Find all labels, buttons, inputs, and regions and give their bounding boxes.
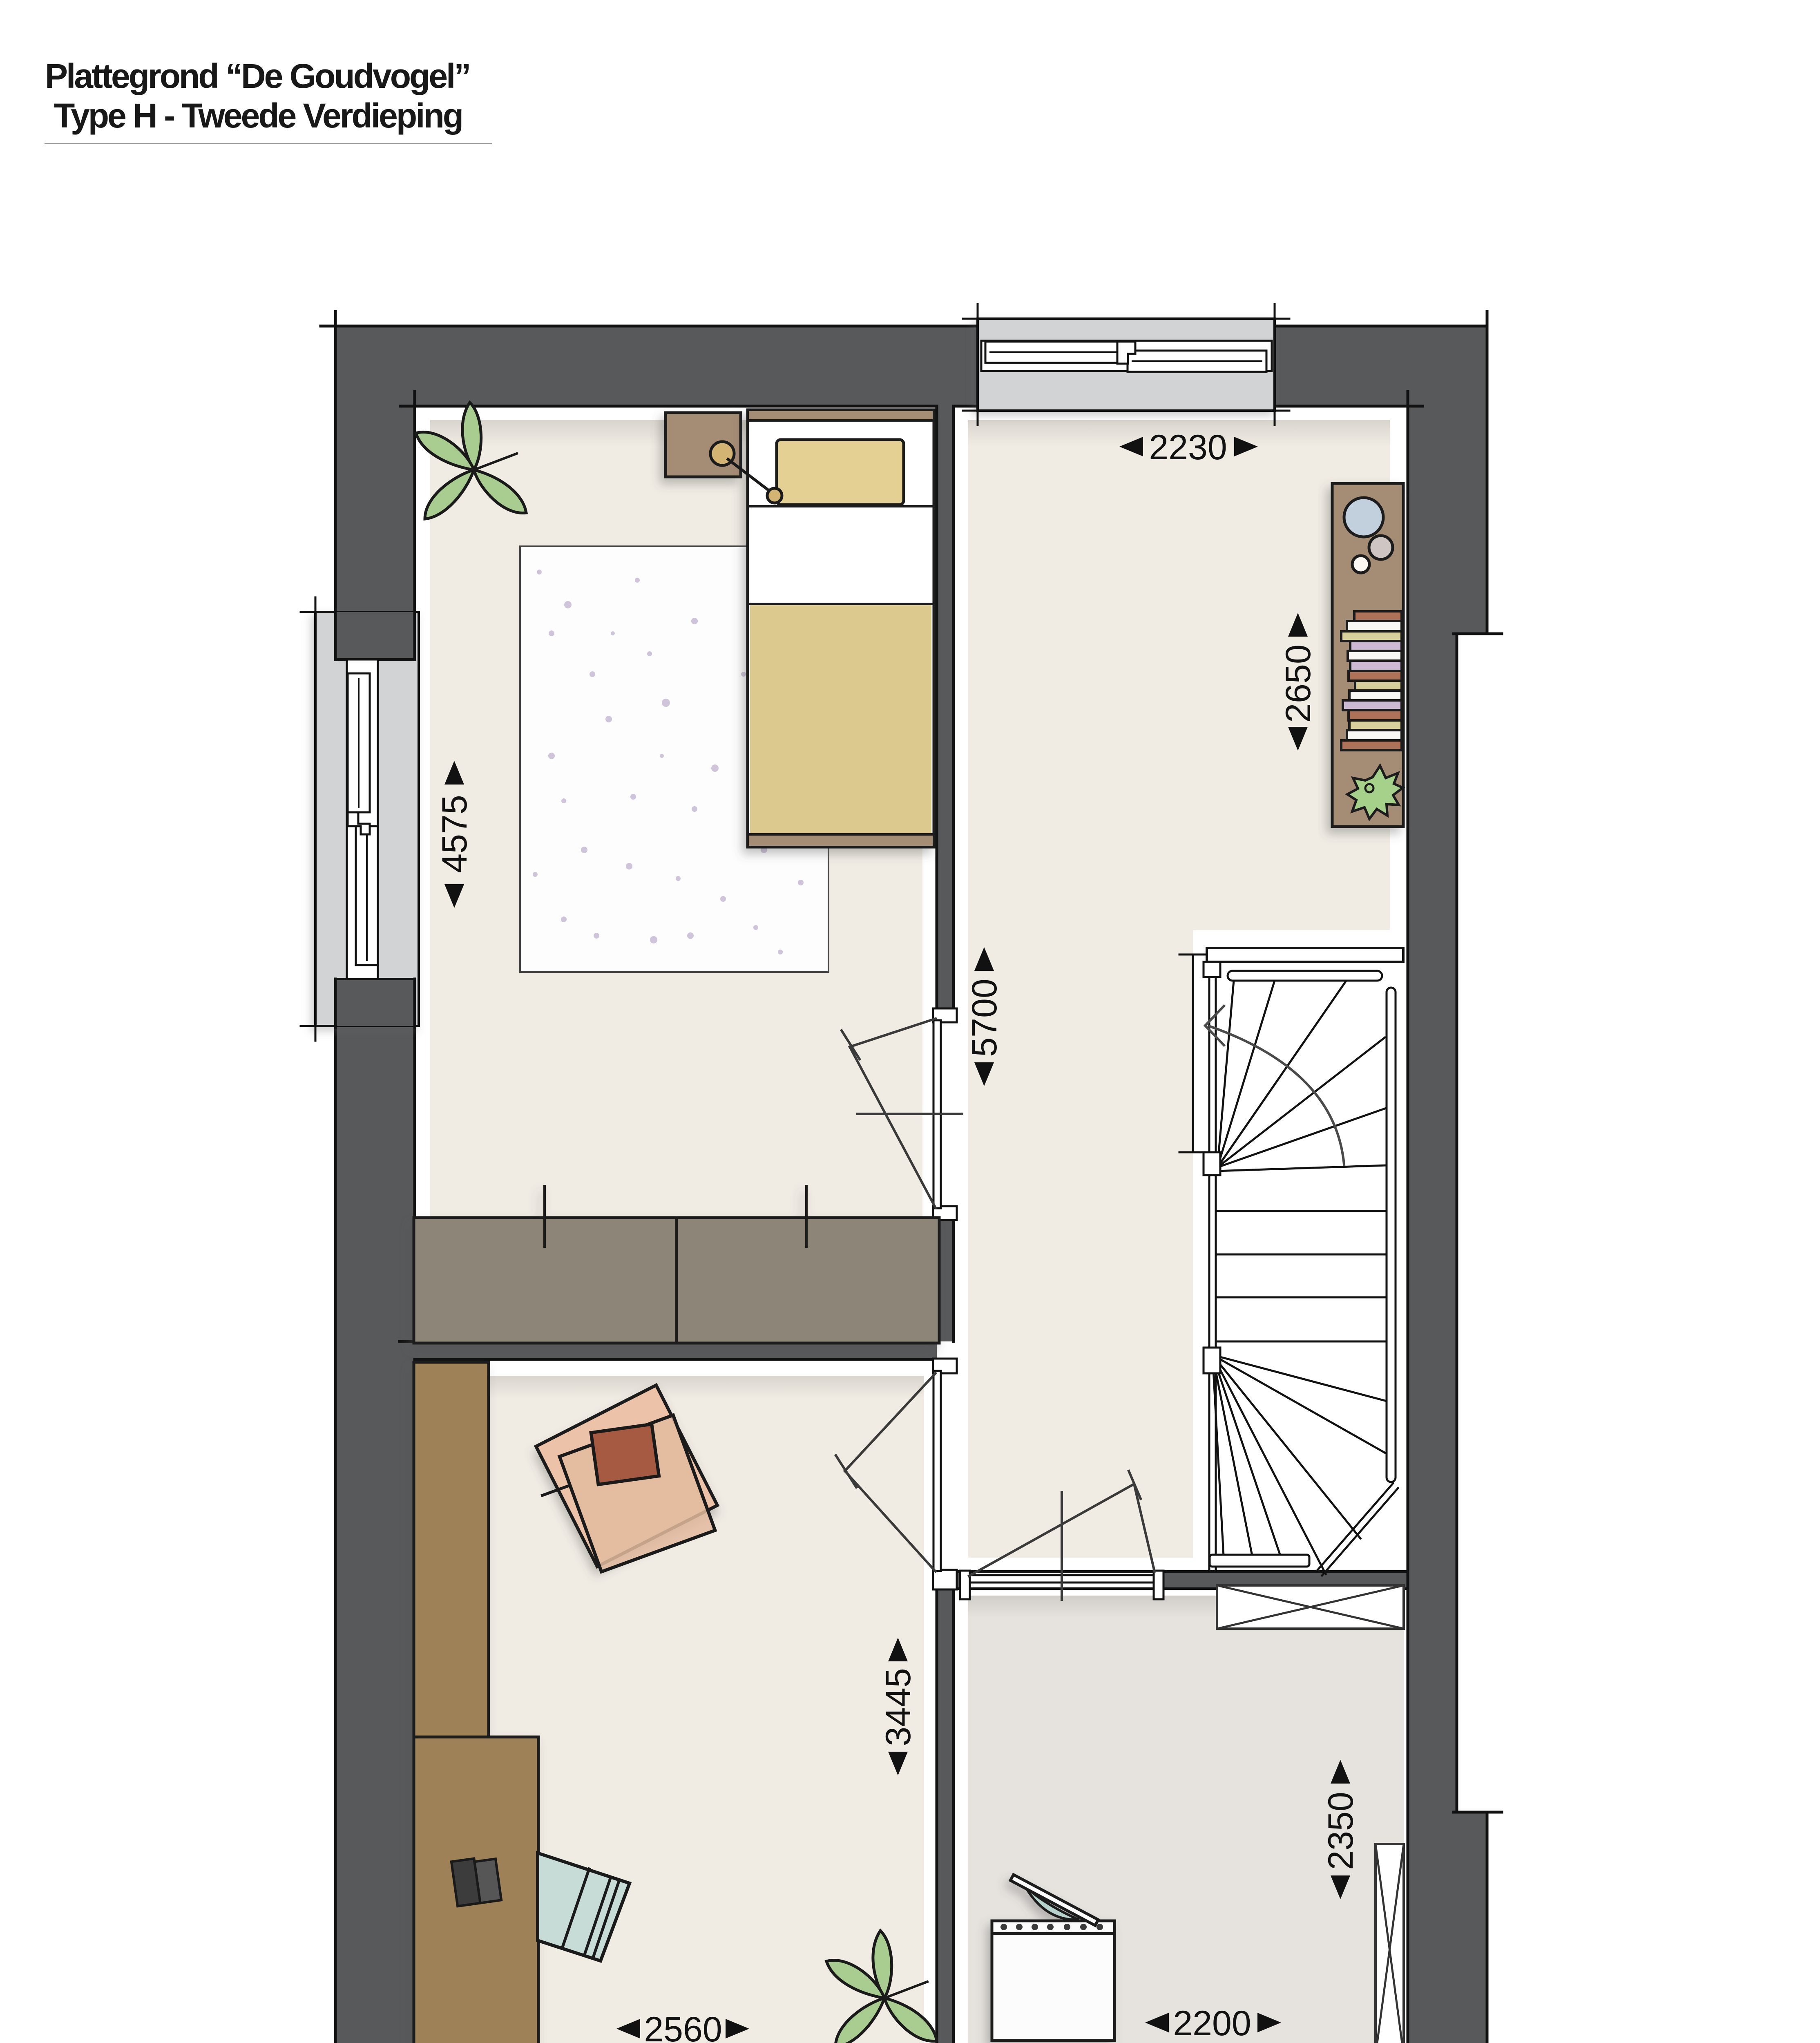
svg-text:4575: 4575 [435,795,474,873]
svg-text:2230: 2230 [1149,428,1227,467]
svg-text:5700: 5700 [965,979,1004,1057]
svg-text:2200: 2200 [1173,2004,1251,2043]
svg-text:2350: 2350 [1321,1792,1360,1870]
svg-text:2650: 2650 [1279,644,1318,722]
svg-text:2560: 2560 [644,2010,722,2043]
svg-text:3445: 3445 [879,1668,918,1746]
